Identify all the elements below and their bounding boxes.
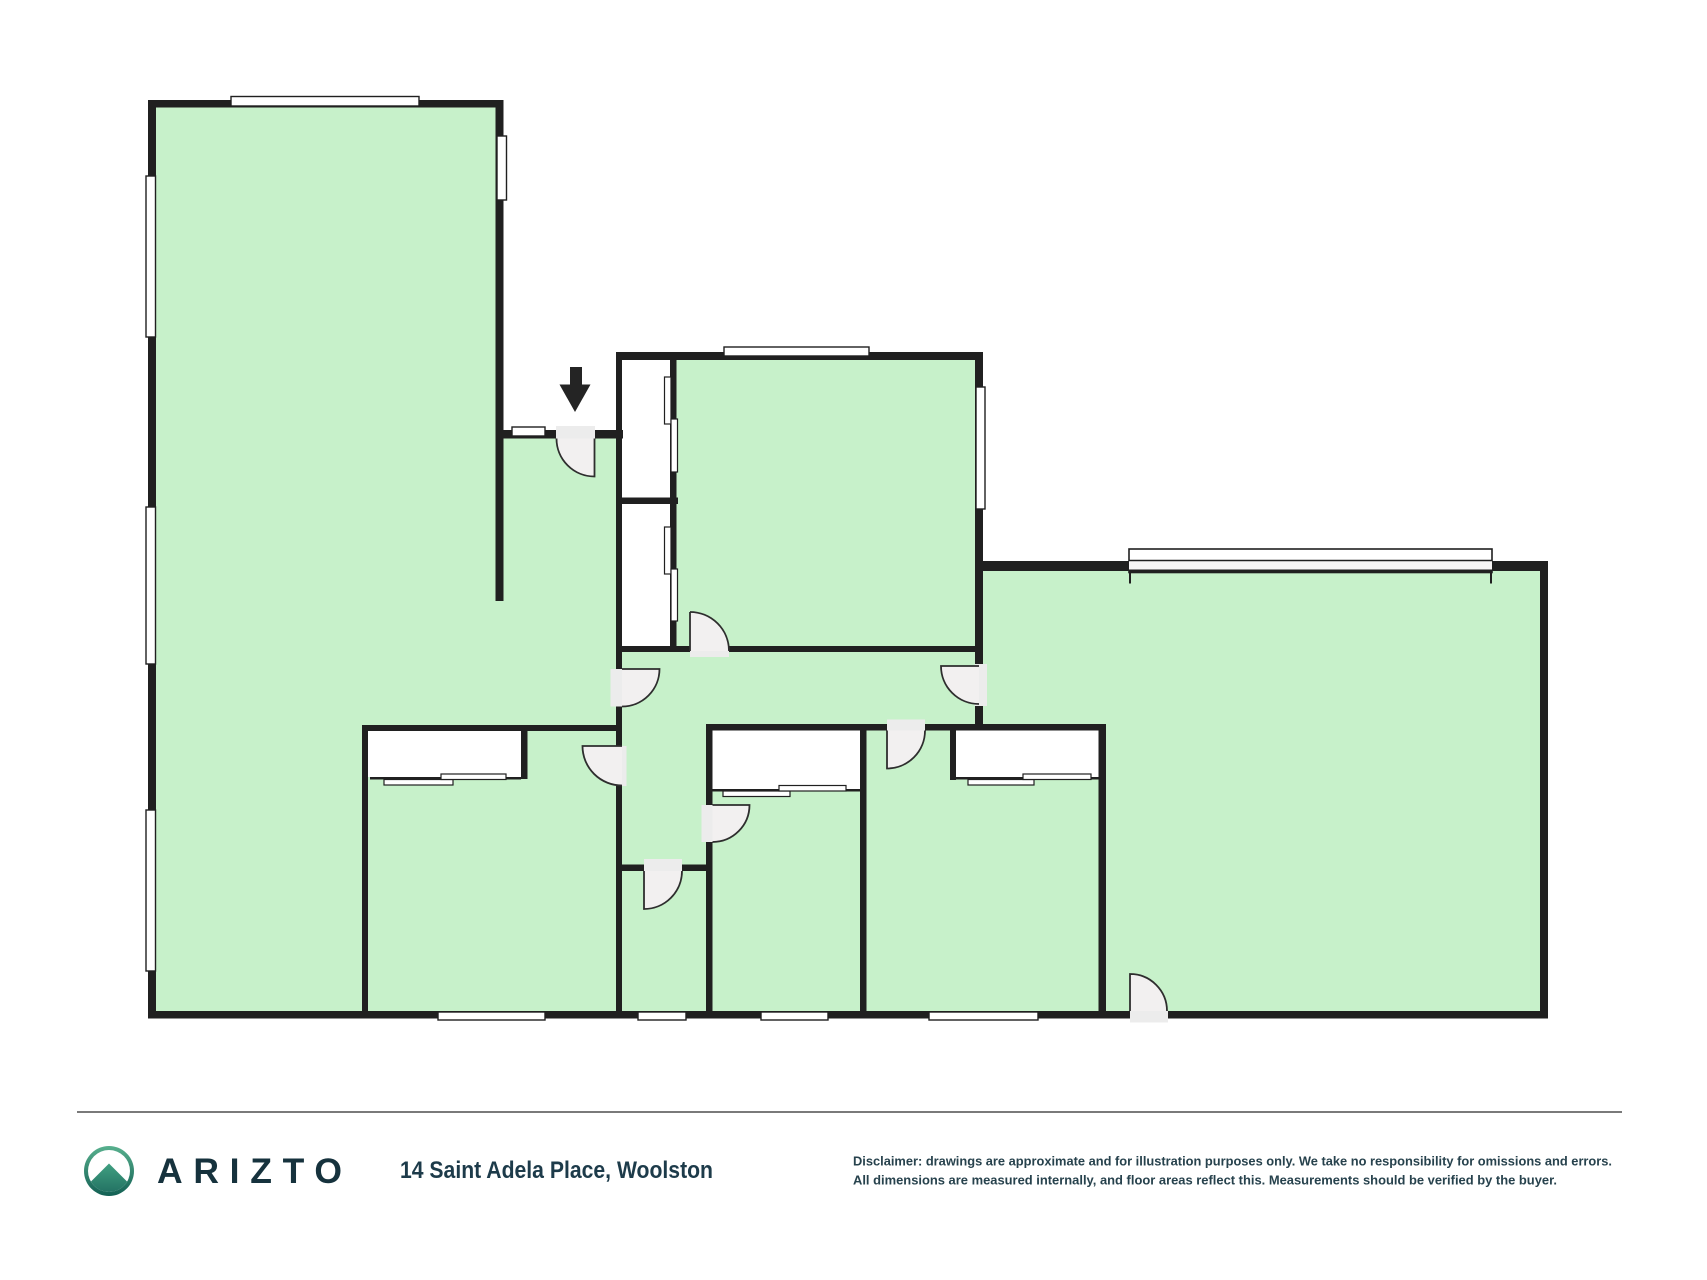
svg-text:14 Saint Adela Place, Woolston: 14 Saint Adela Place, Woolston <box>400 1157 713 1184</box>
svg-text:ARIZTO: ARIZTO <box>157 1151 342 1191</box>
svg-text:All dimensions are measured in: All dimensions are measured internally, … <box>853 1173 1557 1188</box>
svg-text:Disclaimer: drawings are appro: Disclaimer: drawings are approximate and… <box>853 1154 1612 1169</box>
